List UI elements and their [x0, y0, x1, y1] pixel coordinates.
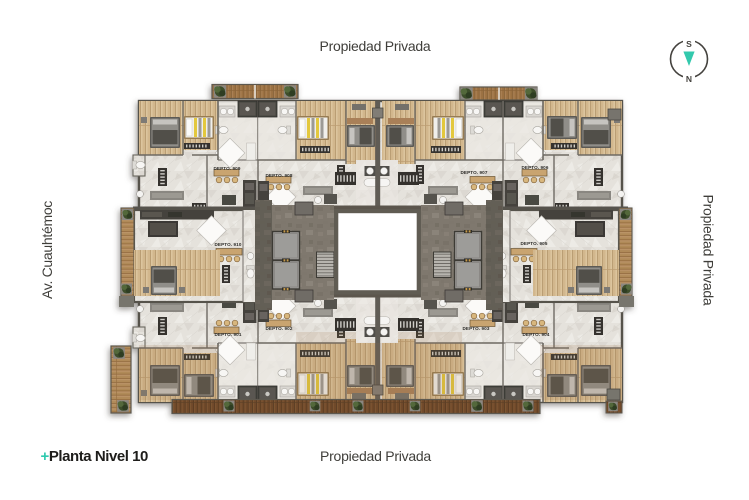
svg-text:DEPTO. 903: DEPTO. 903 [463, 326, 490, 331]
svg-text:N: N [686, 74, 692, 84]
svg-text:Propiedad Privada: Propiedad Privada [320, 448, 431, 464]
svg-text:DEPTO. 904: DEPTO. 904 [523, 332, 550, 337]
svg-text:Propiedad Privada: Propiedad Privada [320, 38, 431, 54]
svg-text:DEPTO. 901: DEPTO. 901 [215, 332, 242, 337]
svg-text:S: S [686, 39, 692, 49]
svg-text:DEPTO. 908: DEPTO. 908 [266, 173, 293, 178]
svg-text:Av. Cuauhtémoc: Av. Cuauhtémoc [39, 201, 55, 299]
svg-text:DEPTO. 906: DEPTO. 906 [522, 165, 549, 170]
svg-text:DEPTO. 902: DEPTO. 902 [266, 326, 293, 331]
svg-text:+Planta Nivel 10: +Planta Nivel 10 [41, 448, 149, 465]
svg-text:DEPTO. 909: DEPTO. 909 [214, 166, 241, 171]
svg-text:DEPTO. 907: DEPTO. 907 [461, 170, 488, 175]
svg-text:Propiedad Privada: Propiedad Privada [701, 195, 717, 306]
svg-text:DEPTO. 905: DEPTO. 905 [521, 241, 548, 246]
svg-text:DEPTO. 910: DEPTO. 910 [215, 242, 242, 247]
